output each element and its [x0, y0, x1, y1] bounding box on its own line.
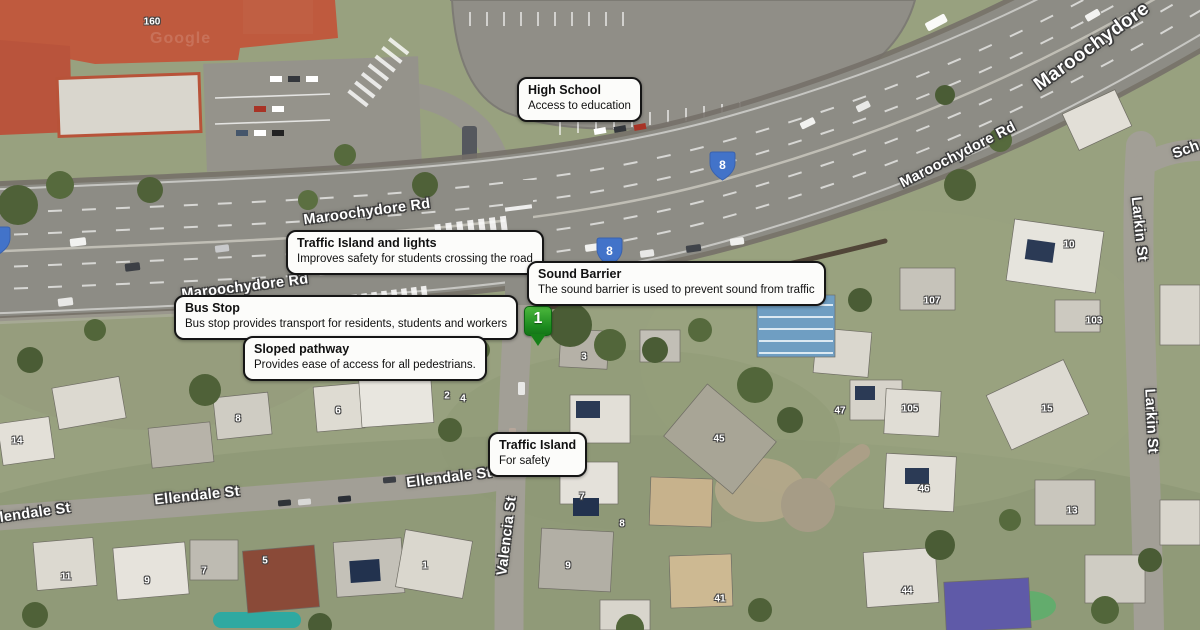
map-marker-1[interactable]: 1 — [524, 306, 552, 336]
callout-title: Bus Stop — [185, 301, 507, 317]
callout-title: Sloped pathway — [254, 342, 476, 358]
route-8-shield: 8 — [709, 151, 736, 181]
callout-sloped-pathway[interactable]: Sloped pathway Provides ease of access f… — [243, 336, 487, 381]
callout-desc: For safety — [499, 454, 576, 469]
satellite-map[interactable]: Google 160 14 8 6 2 4 3 45 47 105 107 10… — [0, 0, 1200, 630]
route-8-number: 8 — [606, 244, 613, 258]
callout-sound-barrier[interactable]: Sound Barrier The sound barrier is used … — [527, 261, 826, 306]
callout-title: Sound Barrier — [538, 267, 815, 283]
map-marker-pointer — [530, 334, 546, 354]
callout-desc: Access to education — [528, 99, 631, 114]
callout-desc: The sound barrier is used to prevent sou… — [538, 283, 815, 298]
callout-traffic-island-lights[interactable]: Traffic Island and lights Improves safet… — [286, 230, 544, 275]
callout-desc: Provides ease of access for all pedestri… — [254, 358, 476, 373]
callout-title: Traffic Island — [499, 438, 576, 454]
callout-title: Traffic Island and lights — [297, 236, 533, 252]
map-marker-label: 1 — [524, 310, 552, 328]
callout-title: High School — [528, 83, 631, 99]
callout-high-school[interactable]: High School Access to education — [517, 77, 642, 122]
route-shield-partial — [0, 226, 11, 256]
callout-traffic-island[interactable]: Traffic Island For safety — [488, 432, 587, 477]
route-8-number: 8 — [719, 158, 726, 172]
callout-bus-stop[interactable]: Bus Stop Bus stop provides transport for… — [174, 295, 518, 340]
callout-desc: Improves safety for students crossing th… — [297, 252, 533, 267]
callout-desc: Bus stop provides transport for resident… — [185, 317, 507, 332]
